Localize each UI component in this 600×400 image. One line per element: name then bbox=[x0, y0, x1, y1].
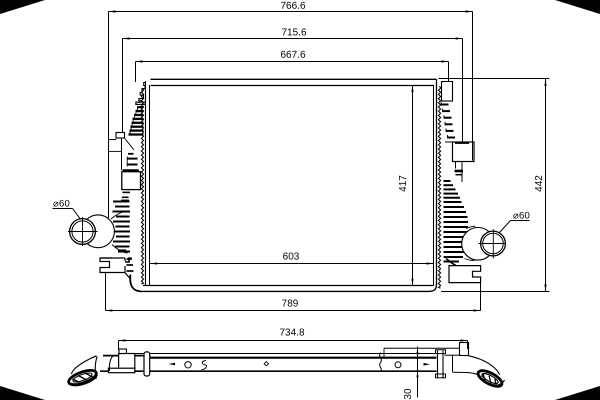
svg-text:⌀60: ⌀60 bbox=[513, 210, 530, 221]
svg-text:⌀60: ⌀60 bbox=[53, 198, 70, 209]
svg-text:766.6: 766.6 bbox=[280, 1, 305, 12]
svg-text:30: 30 bbox=[403, 388, 414, 400]
svg-text:667.6: 667.6 bbox=[280, 50, 305, 61]
svg-text:417: 417 bbox=[398, 175, 409, 192]
svg-text:734.8: 734.8 bbox=[279, 327, 304, 338]
svg-text:442: 442 bbox=[534, 175, 545, 192]
svg-text:715.6: 715.6 bbox=[281, 27, 306, 38]
svg-text:789: 789 bbox=[282, 298, 299, 309]
svg-text:603: 603 bbox=[283, 251, 300, 262]
